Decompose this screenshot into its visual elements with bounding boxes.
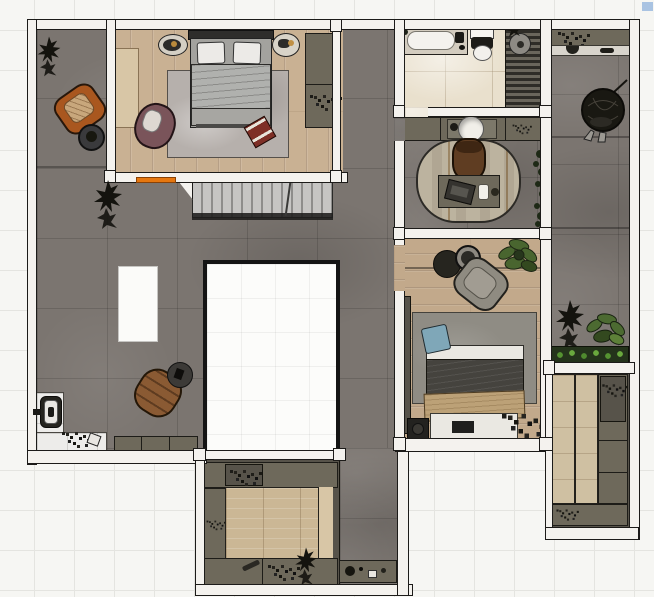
void-room-floor [203, 260, 340, 452]
living-dark-plant[interactable] [92, 178, 124, 230]
jamb-post-8 [539, 437, 553, 451]
jamb-post-6 [539, 227, 552, 240]
corridor-kettle [345, 566, 355, 576]
closet-bottom-speckle-box [225, 464, 263, 486]
bed2-remote [452, 421, 474, 433]
wardrobe-speckles [310, 95, 313, 98]
closet-right-shelf-line2 [599, 472, 627, 473]
wall-closet-right-left [545, 368, 553, 534]
closet-right-shelf-line1 [599, 440, 627, 441]
nightstand-left-lamp [171, 41, 177, 47]
wall-study-bottom [394, 228, 552, 239]
closet-bottom-speckles-bot [268, 565, 271, 568]
wall-closet-top [195, 450, 345, 460]
balcony-shelf-item [600, 48, 614, 53]
tub-faucet [455, 32, 464, 43]
bedroom1-wardrobe[interactable] [305, 33, 335, 128]
bedroom1-door-orange-marker [136, 177, 176, 183]
bed1-pillow-right[interactable] [233, 42, 262, 65]
wall-bedroom1-right [332, 19, 341, 177]
closet-right-panel-seam [574, 374, 576, 504]
wall-balcony-closet-divider [545, 362, 635, 374]
jamb-post-7 [393, 437, 406, 451]
light-wood-panel[interactable] [113, 48, 139, 128]
wall-bedroom2-bottom [395, 438, 553, 452]
selection-artifact [642, 2, 653, 11]
closet-bottom-speckles-top [230, 470, 233, 473]
jamb-post-10 [333, 448, 346, 461]
floor-plan-canvas [0, 0, 654, 597]
opening-bedroom2-door [394, 245, 405, 291]
jamb-post-12 [330, 19, 342, 32]
vanity-divider2 [505, 118, 506, 140]
closet-right-speckle-box [600, 376, 626, 422]
jamb-post-3 [393, 105, 405, 118]
low-cabinet-div1 [141, 437, 142, 451]
sink-faucet [450, 123, 458, 131]
bathtub[interactable] [407, 31, 455, 50]
corridor-dot2 [381, 568, 386, 573]
wall-outer-right [629, 19, 640, 540]
nightstand-right-gold [288, 40, 294, 46]
jamb-post-5 [393, 227, 405, 240]
closet-bottom-div1 [262, 559, 263, 584]
bedroom2-scatter-plant [502, 414, 507, 419]
wall-bottom-left [27, 450, 207, 464]
terrace-table-plant [86, 131, 97, 142]
corridor-dot1 [359, 567, 363, 571]
terrace-dark-plant[interactable] [36, 30, 62, 82]
balcony-seam-2 [551, 227, 631, 229]
closet-left-marks [207, 521, 209, 523]
wall-closet-right-bottom [545, 527, 639, 540]
white-island[interactable] [118, 266, 158, 342]
wall-bedroom1-left [106, 19, 116, 179]
bed1-pillow-left[interactable] [197, 42, 226, 65]
mug[interactable] [478, 184, 489, 200]
closet-right-bottom-speckles [556, 509, 558, 511]
closet-bottom-top-strip[interactable] [203, 462, 338, 488]
jamb-post-4 [539, 105, 552, 118]
opening-corridor-hall [394, 118, 405, 141]
entry-shoes [62, 432, 65, 435]
desk-item [491, 188, 499, 196]
closet-right-bottom-strip[interactable] [551, 504, 628, 526]
opening-bathroom-door [405, 107, 428, 117]
corridor-white-box [368, 570, 377, 578]
wall-outer-left [27, 19, 37, 465]
entry-door-handle [48, 407, 54, 417]
entry-door-stub [33, 409, 41, 415]
tub-item [459, 45, 465, 50]
shower-stool-center [517, 41, 524, 48]
jamb-post-9 [193, 448, 206, 461]
vanity-items [513, 125, 515, 127]
blue-pillow[interactable] [421, 324, 452, 355]
wall-closet-left [195, 450, 205, 596]
closet-right-speckles [602, 384, 604, 386]
closet-bottom-left-column[interactable] [203, 488, 227, 560]
vanity-divider1 [440, 118, 441, 140]
bed1-duvet[interactable] [191, 64, 271, 110]
stair-shadow [192, 213, 333, 220]
closet-dark-plant[interactable] [291, 546, 321, 586]
balcony-green-plant[interactable] [583, 306, 629, 350]
bedroom2-potted-plant[interactable] [495, 233, 543, 278]
balcony-shelf-speckles [558, 32, 561, 35]
office-chair-back [456, 141, 482, 153]
wall-bottom-center [195, 584, 413, 596]
speaker-cone [412, 423, 424, 435]
jamb-post-1 [330, 170, 342, 183]
balcony-dark-round-object[interactable] [578, 78, 632, 150]
jamb-post-11 [543, 360, 555, 375]
low-cabinet-div2 [169, 437, 170, 451]
bedroom1-wardrobe-divider [306, 84, 334, 85]
planter-box[interactable] [551, 346, 629, 363]
wall-corridor-right-lower [397, 450, 409, 596]
terrace-seam [37, 166, 107, 168]
balcony-dark-bush[interactable] [553, 298, 587, 350]
balcony-shelf-lower [551, 45, 631, 56]
toilet-bowl[interactable] [473, 45, 492, 61]
